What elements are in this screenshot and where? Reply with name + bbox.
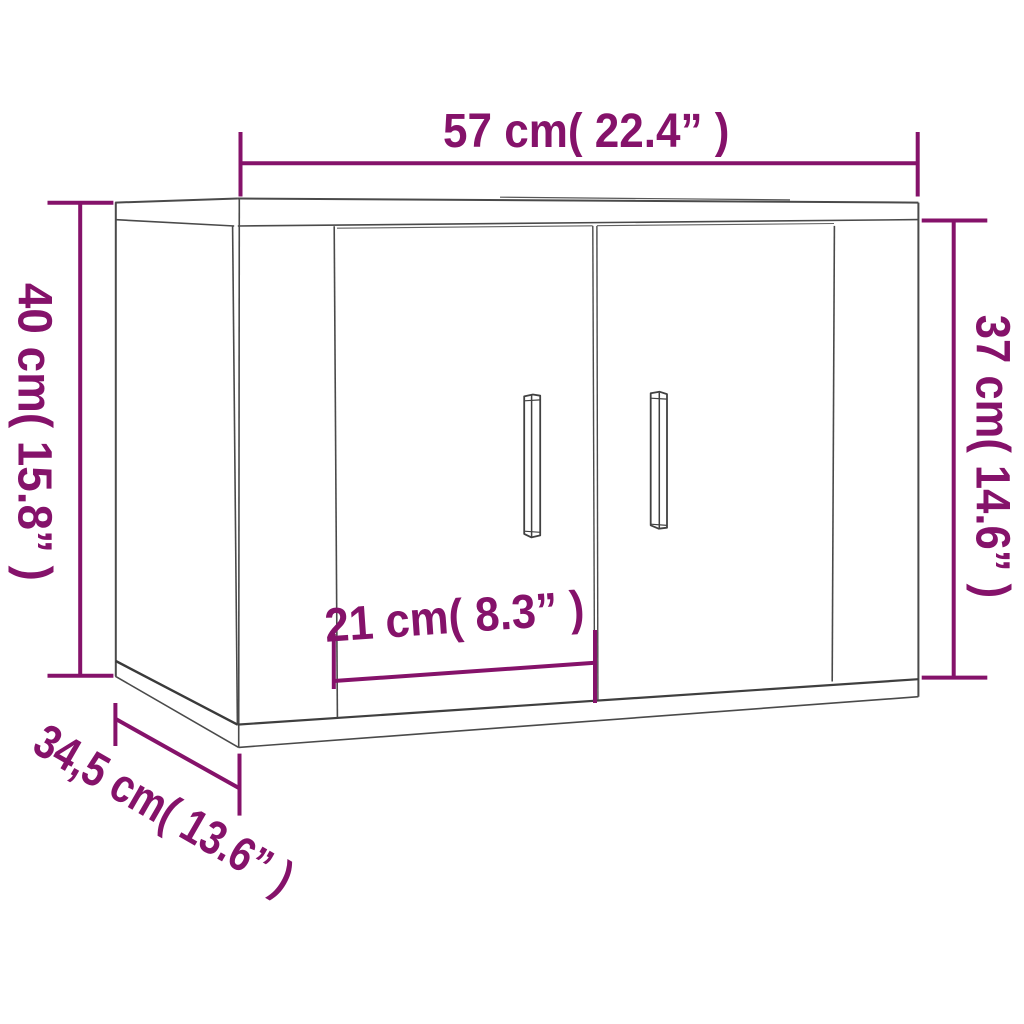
svg-text:40 cm( 15.8” ): 40 cm( 15.8” ) — [8, 283, 61, 581]
svg-text:37 cm( 14.6” ): 37 cm( 14.6” ) — [966, 315, 1019, 598]
svg-text:57 cm( 22.4” ): 57 cm( 22.4” ) — [443, 105, 729, 158]
